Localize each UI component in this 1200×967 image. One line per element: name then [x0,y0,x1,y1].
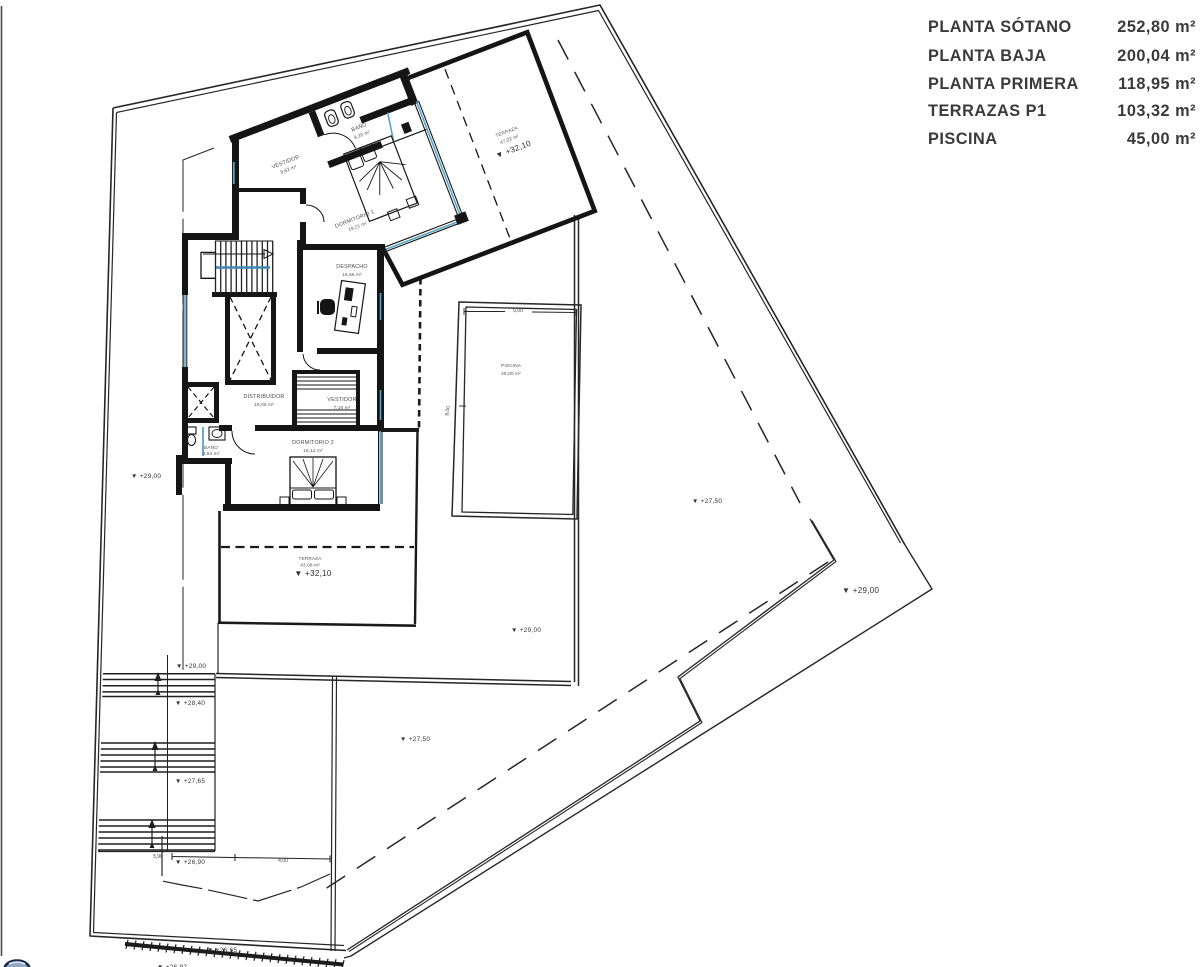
svg-text:4,00: 4,00 [278,858,288,864]
svg-text:DISTRIBUIDOR: DISTRIBUIDOR [243,394,284,400]
svg-text:5,90: 5,90 [153,854,163,860]
svg-text:▼ +29,00: ▼ +29,00 [511,627,541,634]
svg-text:▼ +28,40: ▼ +28,40 [175,700,205,707]
svg-text:▼ +26,65: ▼ +26,65 [207,947,237,954]
svg-text:45,00 m²: 45,00 m² [1127,130,1196,148]
svg-text:118,95 m²: 118,95 m² [1118,75,1196,93]
svg-text:PLANTA BAJA: PLANTA BAJA [928,47,1047,65]
svg-text:TERRAZAS P1: TERRAZAS P1 [928,102,1047,120]
svg-text:3,84 m²: 3,84 m² [203,451,220,457]
svg-text:103,32 m²: 103,32 m² [1117,102,1196,120]
svg-text:▼ +29,00: ▼ +29,00 [842,586,879,595]
svg-text:7,16 m²: 7,16 m² [334,405,351,411]
svg-text:▼ +27,50: ▼ +27,50 [400,736,430,743]
svg-text:43,08 m²: 43,08 m² [300,563,320,569]
svg-text:DORMITORIO 2: DORMITORIO 2 [292,440,334,446]
svg-text:VESTIDOR: VESTIDOR [327,397,356,403]
svg-text:▼ +27,50: ▼ +27,50 [692,498,722,505]
svg-text:▼ +29,00: ▼ +29,00 [131,473,161,480]
svg-text:5,00: 5,00 [513,308,523,314]
svg-text:▼ +26,90: ▼ +26,90 [175,859,205,866]
svg-text:▼ +29,00: ▼ +29,00 [176,663,206,670]
svg-text:TERRAZA: TERRAZA [298,556,322,562]
svg-text:16,06 m²: 16,06 m² [254,402,274,408]
svg-text:BAÑO: BAÑO [204,444,218,451]
svg-text:PLANTA SÓTANO: PLANTA SÓTANO [928,17,1072,36]
svg-text:▼ +27,65: ▼ +27,65 [175,778,205,785]
svg-text:PLANTA PRIMERA: PLANTA PRIMERA [928,75,1079,93]
svg-text:16,66 m²: 16,66 m² [342,272,362,278]
svg-text:200,04 m²: 200,04 m² [1117,47,1196,65]
svg-text:PISCINA: PISCINA [928,130,998,148]
svg-text:DESPACHO: DESPACHO [336,264,367,270]
svg-text:252,80 m²: 252,80 m² [1117,18,1196,36]
svg-text:45,00 m²: 45,00 m² [501,371,521,377]
svg-text:16,12 m²: 16,12 m² [303,448,323,454]
svg-text:PISCINA: PISCINA [501,363,522,369]
svg-text:9,00: 9,00 [444,405,451,416]
svg-text:▼ +32,10: ▼ +32,10 [294,569,331,578]
